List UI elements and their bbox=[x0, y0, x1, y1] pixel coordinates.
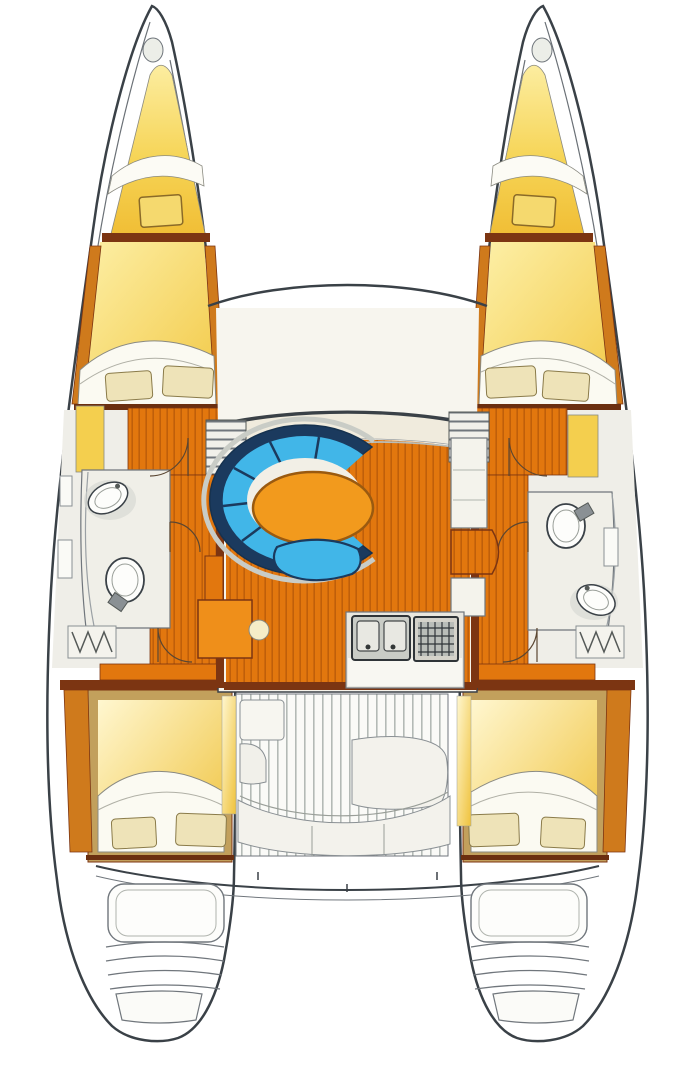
galley-counter-fwd bbox=[451, 438, 487, 528]
port-aft-cabin-face bbox=[100, 664, 224, 680]
stbd-aft-cabin-face bbox=[471, 664, 595, 680]
galley-counter-aft bbox=[451, 578, 485, 616]
port-side-locker-1 bbox=[58, 540, 72, 578]
stbd-aft-pillow-1 bbox=[468, 813, 519, 847]
port-forepeak-hatch bbox=[139, 195, 183, 228]
salon bbox=[198, 411, 499, 692]
port-aft-bulkhead bbox=[60, 680, 236, 690]
stbd-locker-forward bbox=[568, 415, 598, 477]
stbd-aft-cabin bbox=[461, 690, 631, 862]
stbd-forepeak-hatch bbox=[512, 195, 556, 228]
cockpit bbox=[222, 694, 471, 856]
catamaran-floorplan bbox=[0, 0, 695, 1080]
cockpit-port-coaming bbox=[222, 696, 236, 814]
floorplan-svg bbox=[0, 0, 695, 1080]
cockpit-table bbox=[240, 700, 284, 740]
sink-faucet-2 bbox=[391, 645, 396, 650]
port-aft-pillow-1 bbox=[111, 817, 157, 849]
port-anchor-well bbox=[143, 38, 163, 62]
port-forward-pillow-2 bbox=[162, 366, 214, 399]
galley-front-panel bbox=[348, 658, 462, 686]
cockpit-lounge-stbd bbox=[352, 737, 448, 810]
stbd-side-locker-1 bbox=[604, 528, 618, 566]
galley-peninsula bbox=[451, 530, 499, 574]
port-aft-cabin bbox=[64, 690, 234, 862]
nav-seat bbox=[249, 620, 269, 640]
stbd-swim-platform bbox=[493, 991, 579, 1023]
nav-table bbox=[198, 600, 252, 658]
port-transom-hatch bbox=[108, 884, 224, 942]
foredeck-floor bbox=[216, 308, 479, 424]
salon-port-cabinet bbox=[205, 556, 223, 600]
stbd-transom-hatch bbox=[471, 884, 587, 942]
port-swim-platform bbox=[116, 991, 202, 1023]
stbd-forward-pillow-2 bbox=[542, 370, 590, 401]
port-forward-cabin bbox=[72, 233, 226, 416]
stbd-aft-pillow-2 bbox=[540, 817, 586, 849]
stbd-forward-cabin bbox=[469, 233, 623, 416]
sink-faucet-1 bbox=[366, 645, 371, 650]
port-transom-bulkhead bbox=[86, 855, 234, 860]
port-aft-pillow-2 bbox=[175, 813, 226, 847]
stbd-forward-bulkhead bbox=[485, 233, 593, 242]
stbd-transom-bulkhead bbox=[461, 855, 609, 860]
port-forward-pillow-1 bbox=[105, 370, 153, 401]
stbd-forward-pillow-1 bbox=[485, 366, 537, 399]
dinette-stool bbox=[274, 540, 361, 580]
stbd-aft-bulkhead bbox=[459, 680, 635, 690]
dinette-table bbox=[253, 472, 373, 544]
port-side-locker-2 bbox=[60, 476, 72, 506]
port-locker-forward bbox=[76, 406, 104, 472]
stbd-anchor-well bbox=[532, 38, 552, 62]
cockpit-stbd-coaming bbox=[457, 696, 471, 826]
port-forward-bulkhead bbox=[102, 233, 210, 242]
